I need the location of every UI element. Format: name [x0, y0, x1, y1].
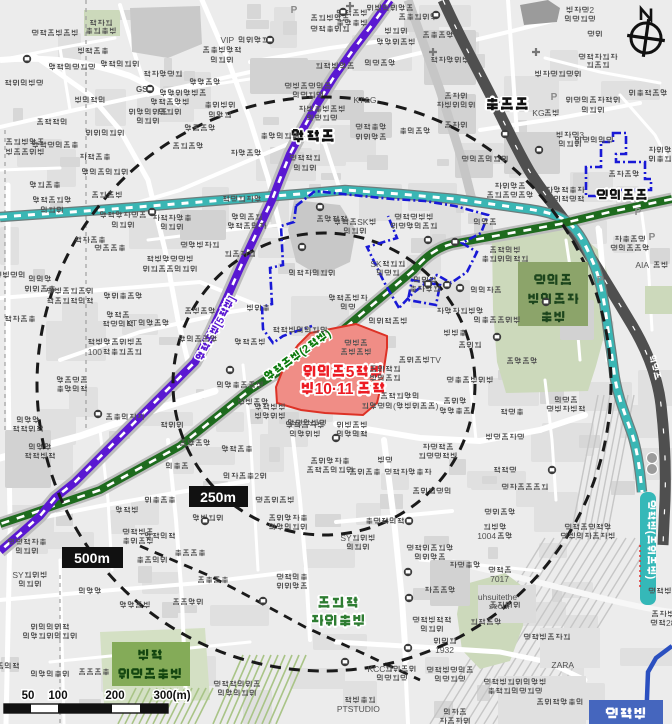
svg-text:KT&G: KT&G [353, 95, 376, 105]
svg-text:2: 2 [254, 471, 259, 481]
svg-text:1932: 1932 [435, 645, 454, 655]
svg-text:7017: 7017 [490, 574, 509, 584]
svg-text:P: P [635, 207, 642, 218]
svg-text:P: P [649, 232, 656, 243]
svg-text:SY: SY [340, 533, 352, 543]
svg-text:PTSTUDIO: PTSTUDIO [337, 704, 380, 714]
svg-text:1004: 1004 [477, 531, 496, 541]
svg-text:300(m): 300(m) [153, 690, 190, 702]
svg-text:(: ( [645, 531, 657, 535]
svg-text:50: 50 [22, 690, 35, 702]
svg-text:ZARA: ZARA [551, 660, 574, 670]
svg-text:250m: 250m [200, 489, 236, 505]
svg-text:TV: TV [430, 355, 441, 365]
svg-text:VIP: VIP [221, 35, 235, 45]
svg-text:): ) [645, 576, 657, 580]
svg-text:GS: GS [136, 85, 148, 94]
svg-text:KG: KG [532, 108, 544, 118]
svg-text:(: ( [393, 401, 396, 411]
svg-text:500m: 500m [74, 550, 110, 566]
svg-text:2: 2 [589, 5, 594, 15]
svg-text:): ) [436, 401, 439, 411]
svg-text:P: P [551, 92, 558, 103]
svg-text:10·11: 10·11 [315, 381, 354, 398]
svg-text:SK: SK [370, 259, 382, 269]
svg-text:28: 28 [666, 618, 672, 628]
svg-text:5: 5 [346, 364, 355, 381]
svg-text:P: P [597, 275, 604, 286]
svg-text:AIA: AIA [635, 260, 649, 270]
svg-text:KCC: KCC [368, 664, 386, 674]
svg-text:SK: SK [357, 217, 369, 227]
svg-text:200: 200 [105, 690, 124, 702]
svg-text:SY: SY [12, 570, 24, 580]
svg-text:100: 100 [48, 690, 67, 702]
svg-text:P: P [291, 5, 298, 16]
svg-text:100: 100 [88, 347, 102, 357]
